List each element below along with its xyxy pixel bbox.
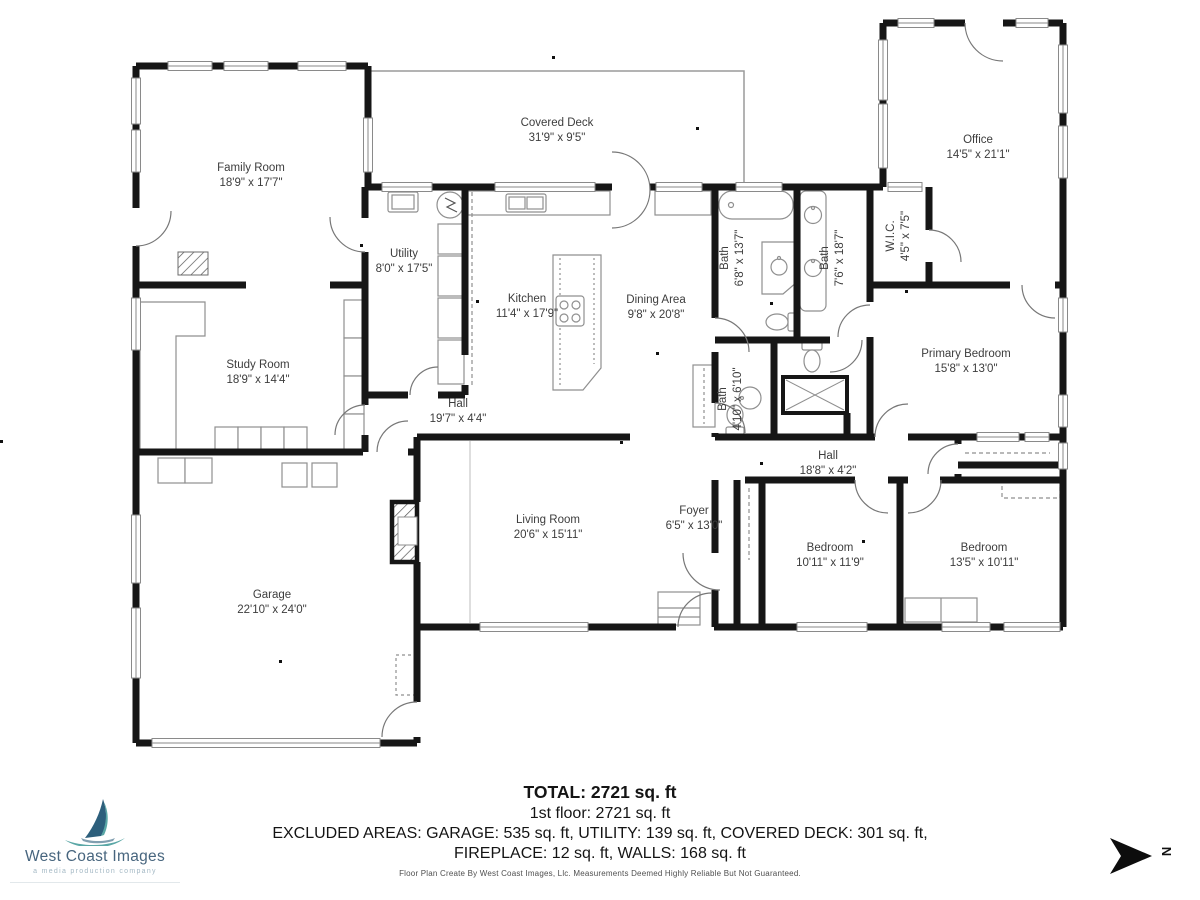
- room-dims: 6'8" x 13'7": [733, 230, 748, 287]
- room-dims: 18'9" x 14'4": [226, 373, 289, 388]
- room-name: Study Room: [226, 358, 289, 373]
- room-dims: 11'4" x 17'9": [496, 307, 558, 322]
- buffet-counter: [655, 191, 711, 215]
- room-dims: 8'0" x 17'5": [376, 262, 433, 277]
- room-dims: 19'7" x 4'4": [430, 412, 487, 427]
- room-dims: 20'6" x 15'11": [514, 528, 583, 543]
- shower: [783, 377, 847, 413]
- room-label-garage: Garage 22'10" x 24'0": [237, 588, 306, 618]
- room-name: Office: [946, 133, 1009, 148]
- sailboat-icon: [57, 798, 133, 846]
- room-label-bath-2: Bath 7'6" x 18'7": [818, 230, 848, 287]
- room-dims: 18'9" x 17'7": [217, 176, 285, 191]
- logo-title: West Coast Images: [10, 848, 180, 866]
- room-dims: 18'8" x 4'2": [800, 464, 857, 479]
- deck-door: [612, 152, 650, 228]
- toilet-bowl: [766, 314, 788, 330]
- room-name: Hall: [800, 449, 857, 464]
- north-arrow-icon: [1100, 832, 1160, 882]
- room-label-wic: W.I.C. 4'5" x 7'5": [884, 211, 914, 261]
- north-compass: N: [1100, 832, 1190, 882]
- room-dims: 9'8" x 20'8": [626, 308, 685, 323]
- room-label-primary-bedroom: Primary Bedroom 15'8" x 13'0": [921, 347, 1010, 377]
- room-label-study-room: Study Room 18'9" x 14'4": [226, 358, 289, 388]
- room-name: Bedroom: [796, 541, 864, 556]
- room-label-office: Office 14'5" x 21'1": [946, 133, 1009, 163]
- fireplaces: [178, 252, 417, 562]
- stove: [556, 296, 584, 326]
- logo-subtitle: a media production company: [10, 868, 180, 875]
- north-label: N: [1159, 847, 1174, 856]
- floor-plan-drawing: [0, 0, 1200, 780]
- room-label-bedroom-1: Bedroom 10'11" x 11'9": [796, 541, 864, 571]
- excluded-areas-line2: FIREPLACE: 12 sq. ft, WALLS: 168 sq. ft: [0, 845, 1200, 863]
- room-name: Living Room: [514, 513, 583, 528]
- room-label-utility: Utility 8'0" x 17'5": [376, 247, 433, 277]
- room-label-foyer: Foyer 6'5" x 13'0": [666, 504, 723, 534]
- room-name: Kitchen: [496, 292, 558, 307]
- room-name: Primary Bedroom: [921, 347, 1010, 362]
- floor-plan-page: Family Room 18'9" x 17'7" Covered Deck 3…: [0, 0, 1200, 900]
- room-name: Covered Deck: [521, 116, 594, 131]
- disclaimer-text: Floor Plan Create By West Coast Images, …: [0, 869, 1200, 878]
- room-dims: 15'8" x 13'0": [921, 362, 1010, 377]
- room-name: Utility: [376, 247, 433, 262]
- room-label-bath-1: Bath 6'8" x 13'7": [718, 230, 748, 287]
- room-name: W.I.C.: [884, 211, 899, 261]
- room-dims: 4'5" x 7'5": [899, 211, 914, 261]
- room-label-family-room: Family Room 18'9" x 17'7": [217, 161, 285, 191]
- room-name: Bath: [818, 230, 833, 287]
- room-name: Dining Area: [626, 293, 685, 308]
- room-dims: 7'6" x 18'7": [833, 230, 848, 287]
- sectional-sofa: [140, 302, 205, 450]
- room-label-hall-1: Hall 19'7" x 4'4": [430, 397, 487, 427]
- room-dims: 14'5" x 21'1": [946, 148, 1009, 163]
- room-name: Family Room: [217, 161, 285, 176]
- room-label-living-room: Living Room 20'6" x 15'11": [514, 513, 583, 543]
- room-dims: 13'5" x 10'11": [950, 556, 1019, 571]
- room-label-bedroom-2: Bedroom 13'5" x 10'11": [950, 541, 1019, 571]
- total-area: TOTAL: 2721 sq. ft: [0, 782, 1200, 803]
- family-room-fireplace: [178, 252, 208, 275]
- room-label-bath-3: Bath 4'10" x 6'10": [716, 367, 746, 430]
- room-dims: 10'11" x 11'9": [796, 556, 864, 571]
- room-name: Hall: [430, 397, 487, 412]
- excluded-areas-line1: EXCLUDED AREAS: GARAGE: 535 sq. ft, UTIL…: [0, 825, 1200, 843]
- bedroom-closet: [1002, 482, 1060, 498]
- room-dims: 4'10" x 6'10": [731, 367, 746, 430]
- room-label-dining-area: Dining Area 9'8" x 20'8": [626, 293, 685, 323]
- room-label-covered-deck: Covered Deck 31'9" x 9'5": [521, 116, 594, 146]
- company-logo: West Coast Images a media production com…: [10, 798, 180, 883]
- logo-divider: [10, 882, 180, 883]
- toilet-bowl: [804, 350, 820, 372]
- fixtures: [140, 191, 1060, 695]
- room-name: Foyer: [666, 504, 723, 519]
- room-dims: 6'5" x 13'0": [666, 519, 723, 534]
- room-dims: 22'10" x 24'0": [237, 603, 306, 618]
- room-name: Bath: [718, 230, 733, 287]
- room-name: Bedroom: [950, 541, 1019, 556]
- room-name: Garage: [237, 588, 306, 603]
- first-floor-area: 1st floor: 2721 sq. ft: [0, 805, 1200, 823]
- garage-equipment: [396, 655, 416, 695]
- room-label-hall-2: Hall 18'8" x 4'2": [800, 449, 857, 479]
- room-dims: 31'9" x 9'5": [521, 131, 594, 146]
- room-label-kitchen: Kitchen 11'4" x 17'9": [496, 292, 558, 322]
- room-name: Bath: [716, 367, 731, 430]
- area-summary: TOTAL: 2721 sq. ft 1st floor: 2721 sq. f…: [0, 782, 1200, 865]
